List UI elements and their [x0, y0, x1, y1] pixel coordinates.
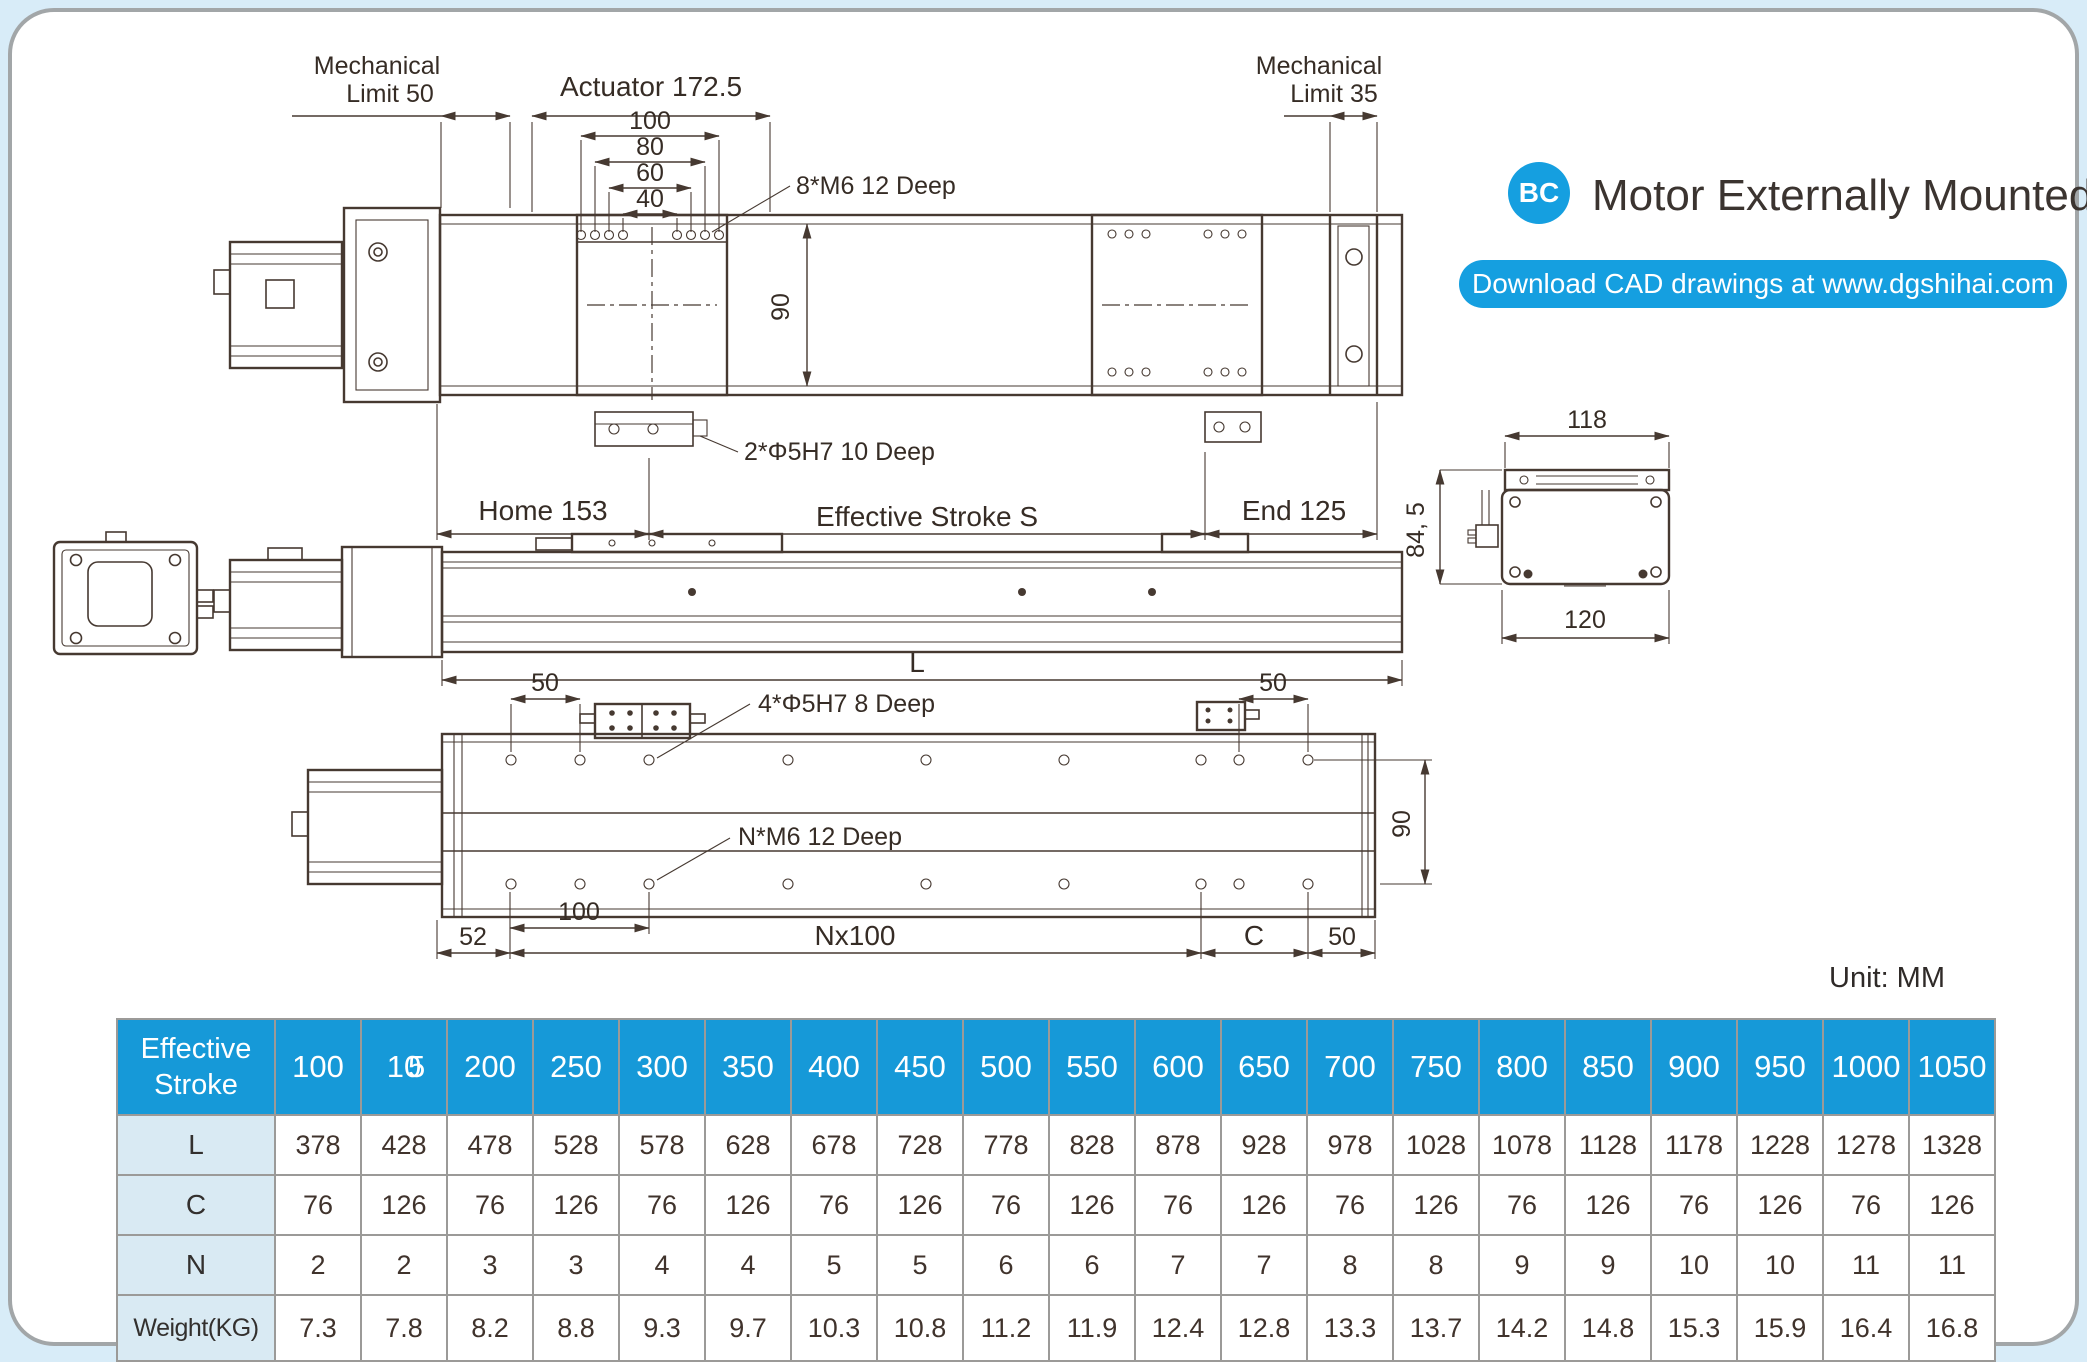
stroke-column-1050: 1050	[1909, 1019, 1995, 1115]
spec-cell: 13.7	[1393, 1295, 1479, 1361]
spec-cell: 878	[1135, 1115, 1221, 1175]
stroke-column-550: 550	[1049, 1019, 1135, 1115]
spec-cell: 1178	[1651, 1115, 1737, 1175]
spec-cell: 126	[705, 1175, 791, 1235]
end-view: 118 84, 5 120	[1402, 406, 1669, 644]
spec-cell: 8	[1307, 1235, 1393, 1295]
spec-cell: 1028	[1393, 1115, 1479, 1175]
dim-40: 40	[636, 185, 664, 213]
dim-80: 80	[636, 133, 664, 161]
label-4phi5h7: 4*Φ5H7 8 Deep	[758, 690, 935, 718]
page-card: BC Motor Externally Mounted Download CAD…	[8, 8, 2079, 1346]
spec-cell: 7	[1221, 1235, 1307, 1295]
top-view: Mechanical Limit 50 Actuator 172.5 100 8…	[214, 52, 1402, 540]
stroke-column-150: 105	[361, 1019, 447, 1115]
dim-50-left: 50	[531, 669, 559, 697]
motor-face-view	[54, 532, 213, 654]
spec-cell: 76	[619, 1175, 705, 1235]
spec-row-C: C761267612676126761267612676126761267612…	[117, 1175, 1995, 1235]
spec-cell: 5	[791, 1235, 877, 1295]
spec-cell: 126	[1221, 1175, 1307, 1235]
spec-cell: 13.3	[1307, 1295, 1393, 1361]
stroke-column-950: 950	[1737, 1019, 1823, 1115]
dim-90-bottom-view: 90	[1388, 810, 1416, 838]
spec-cell: 528	[533, 1115, 619, 1175]
spec-cell: 16.4	[1823, 1295, 1909, 1361]
spec-cell: 15.9	[1737, 1295, 1823, 1361]
stroke-column-850: 850	[1565, 1019, 1651, 1115]
dim-c: C	[1244, 920, 1264, 951]
spec-cell: 4	[705, 1235, 791, 1295]
dim-60: 60	[636, 159, 664, 187]
dim-120: 120	[1564, 606, 1606, 634]
spec-cell: 9.7	[705, 1295, 791, 1361]
unit-label: Unit: MM	[1829, 962, 1945, 995]
dim-effective-stroke: Effective Stroke S	[816, 501, 1038, 532]
dim-100: 100	[629, 107, 671, 135]
spec-cell: 7	[1135, 1235, 1221, 1295]
spec-cell: 728	[877, 1115, 963, 1175]
spec-cell: 126	[1565, 1175, 1651, 1235]
row-label-L: L	[117, 1115, 275, 1175]
spec-cell: 76	[791, 1175, 877, 1235]
side-view: L	[214, 534, 1402, 686]
stroke-column-650: 650	[1221, 1019, 1307, 1115]
spec-cell: 1128	[1565, 1115, 1651, 1175]
dim-mech-limit-50-line2: Limit 50	[346, 80, 434, 108]
effective-stroke-line1: Effective	[118, 1031, 274, 1067]
label-8m6-12-deep: 8*M6 12 Deep	[796, 172, 956, 200]
effective-stroke-line2: Stroke	[118, 1067, 274, 1103]
spec-cell: 126	[877, 1175, 963, 1235]
stroke-column-600: 600	[1135, 1019, 1221, 1115]
spec-row-N: N223344556677889910101111	[117, 1235, 1995, 1295]
stroke-column-350: 350	[705, 1019, 791, 1115]
spec-cell: 3	[447, 1235, 533, 1295]
spec-cell: 628	[705, 1115, 791, 1175]
spec-cell: 14.2	[1479, 1295, 1565, 1361]
dim-84-5: 84, 5	[1402, 502, 1430, 558]
spec-cell: 378	[275, 1115, 361, 1175]
spec-cell: 76	[963, 1175, 1049, 1235]
spec-cell: 126	[1393, 1175, 1479, 1235]
spec-cell: 1078	[1479, 1115, 1565, 1175]
stroke-column-400: 400	[791, 1019, 877, 1115]
dim-mech-limit-35-line1: Mechanical	[1256, 52, 1382, 80]
spec-table-body: L378428478528578628678728778828878928978…	[117, 1115, 1995, 1361]
spec-cell: 126	[1049, 1175, 1135, 1235]
dim-90-top-view: 90	[767, 293, 795, 321]
spec-cell: 15.3	[1651, 1295, 1737, 1361]
spec-cell: 828	[1049, 1115, 1135, 1175]
label-2phi5h7: 2*Φ5H7 10 Deep	[744, 438, 935, 466]
dim-L: L	[909, 647, 925, 678]
stroke-column-300: 300	[619, 1019, 705, 1115]
spec-row-Weight(KG): Weight(KG)7.37.88.28.89.39.710.310.811.2…	[117, 1295, 1995, 1361]
spec-cell: 10	[1737, 1235, 1823, 1295]
spec-cell: 7.3	[275, 1295, 361, 1361]
stroke-header-row: Effective Stroke 10010520025030035040045…	[117, 1019, 1995, 1115]
spec-cell: 11	[1823, 1235, 1909, 1295]
spec-cell: 76	[447, 1175, 533, 1235]
spec-cell: 16.8	[1909, 1295, 1995, 1361]
spec-cell: 11	[1909, 1235, 1995, 1295]
spec-cell: 12.8	[1221, 1295, 1307, 1361]
spec-cell: 578	[619, 1115, 705, 1175]
spec-cell: 76	[1479, 1175, 1565, 1235]
row-label-C: C	[117, 1175, 275, 1235]
dim-50-bottom: 50	[1328, 923, 1356, 951]
spec-cell: 678	[791, 1115, 877, 1175]
spec-cell: 8.8	[533, 1295, 619, 1361]
spec-cell: 76	[1135, 1175, 1221, 1235]
spec-cell: 11.2	[963, 1295, 1049, 1361]
effective-stroke-header: Effective Stroke	[117, 1019, 275, 1115]
spec-cell: 2	[275, 1235, 361, 1295]
stroke-column-200: 200	[447, 1019, 533, 1115]
stroke-column-750: 750	[1393, 1019, 1479, 1115]
label-nm6-12-deep: N*M6 12 Deep	[738, 823, 902, 851]
spec-cell: 76	[275, 1175, 361, 1235]
spec-cell: 428	[361, 1115, 447, 1175]
dim-mech-limit-35-line2: Limit 35	[1290, 80, 1378, 108]
spec-cell: 126	[361, 1175, 447, 1235]
technical-drawing: Mechanical Limit 50 Actuator 172.5 100 8…	[12, 12, 2087, 1007]
spec-cell: 6	[1049, 1235, 1135, 1295]
dim-118: 118	[1567, 406, 1607, 434]
spec-cell: 778	[963, 1115, 1049, 1175]
spec-cell: 126	[1737, 1175, 1823, 1235]
spec-cell: 76	[1307, 1175, 1393, 1235]
dim-end-125: End 125	[1242, 495, 1346, 526]
stroke-column-500: 500	[963, 1019, 1049, 1115]
spec-cell: 9.3	[619, 1295, 705, 1361]
spec-cell: 1278	[1823, 1115, 1909, 1175]
spec-cell: 7.8	[361, 1295, 447, 1361]
stroke-column-800: 800	[1479, 1019, 1565, 1115]
spec-cell: 1328	[1909, 1115, 1995, 1175]
spec-cell: 5	[877, 1235, 963, 1295]
spec-table-head: Effective Stroke 10010520025030035040045…	[117, 1019, 1995, 1115]
stroke-column-250: 250	[533, 1019, 619, 1115]
spec-cell: 8.2	[447, 1295, 533, 1361]
stroke-column-450: 450	[877, 1019, 963, 1115]
spec-cell: 478	[447, 1115, 533, 1175]
spec-cell: 10	[1651, 1235, 1737, 1295]
spec-cell: 14.8	[1565, 1295, 1651, 1361]
row-label-Weight(KG): Weight(KG)	[117, 1295, 275, 1361]
spec-cell: 8	[1393, 1235, 1479, 1295]
spec-cell: 928	[1221, 1115, 1307, 1175]
spec-cell: 978	[1307, 1115, 1393, 1175]
dim-mech-limit-50-line1: Mechanical	[314, 52, 440, 80]
spec-cell: 1228	[1737, 1115, 1823, 1175]
stroke-column-700: 700	[1307, 1019, 1393, 1115]
spec-table: Effective Stroke 10010520025030035040045…	[116, 1018, 1996, 1362]
dim-50-right: 50	[1259, 669, 1287, 697]
spec-cell: 10.3	[791, 1295, 877, 1361]
stroke-column-900: 900	[1651, 1019, 1737, 1115]
dim-actuator: Actuator 172.5	[560, 71, 742, 102]
spec-cell: 126	[533, 1175, 619, 1235]
spec-cell: 9	[1565, 1235, 1651, 1295]
spec-cell: 9	[1479, 1235, 1565, 1295]
spec-cell: 10.8	[877, 1295, 963, 1361]
spec-cell: 76	[1823, 1175, 1909, 1235]
spec-cell: 6	[963, 1235, 1049, 1295]
spec-cell: 12.4	[1135, 1295, 1221, 1361]
spec-row-L: L378428478528578628678728778828878928978…	[117, 1115, 1995, 1175]
row-label-N: N	[117, 1235, 275, 1295]
spec-cell: 11.9	[1049, 1295, 1135, 1361]
dim-nx100: Nx100	[815, 920, 896, 951]
dim-100-bottom: 100	[558, 898, 600, 926]
dim-52: 52	[459, 923, 487, 951]
dim-home-153: Home 153	[478, 495, 607, 526]
spec-cell: 76	[1651, 1175, 1737, 1235]
spec-cell: 2	[361, 1235, 447, 1295]
spec-cell: 4	[619, 1235, 705, 1295]
spec-cell: 126	[1909, 1175, 1995, 1235]
stroke-column-1000: 1000	[1823, 1019, 1909, 1115]
spec-cell: 3	[533, 1235, 619, 1295]
stroke-column-100: 100	[275, 1019, 361, 1115]
bottom-view: 50 4*Φ5H7 8 Deep 50 N*M6 12 Deep 90 100	[292, 669, 1432, 959]
